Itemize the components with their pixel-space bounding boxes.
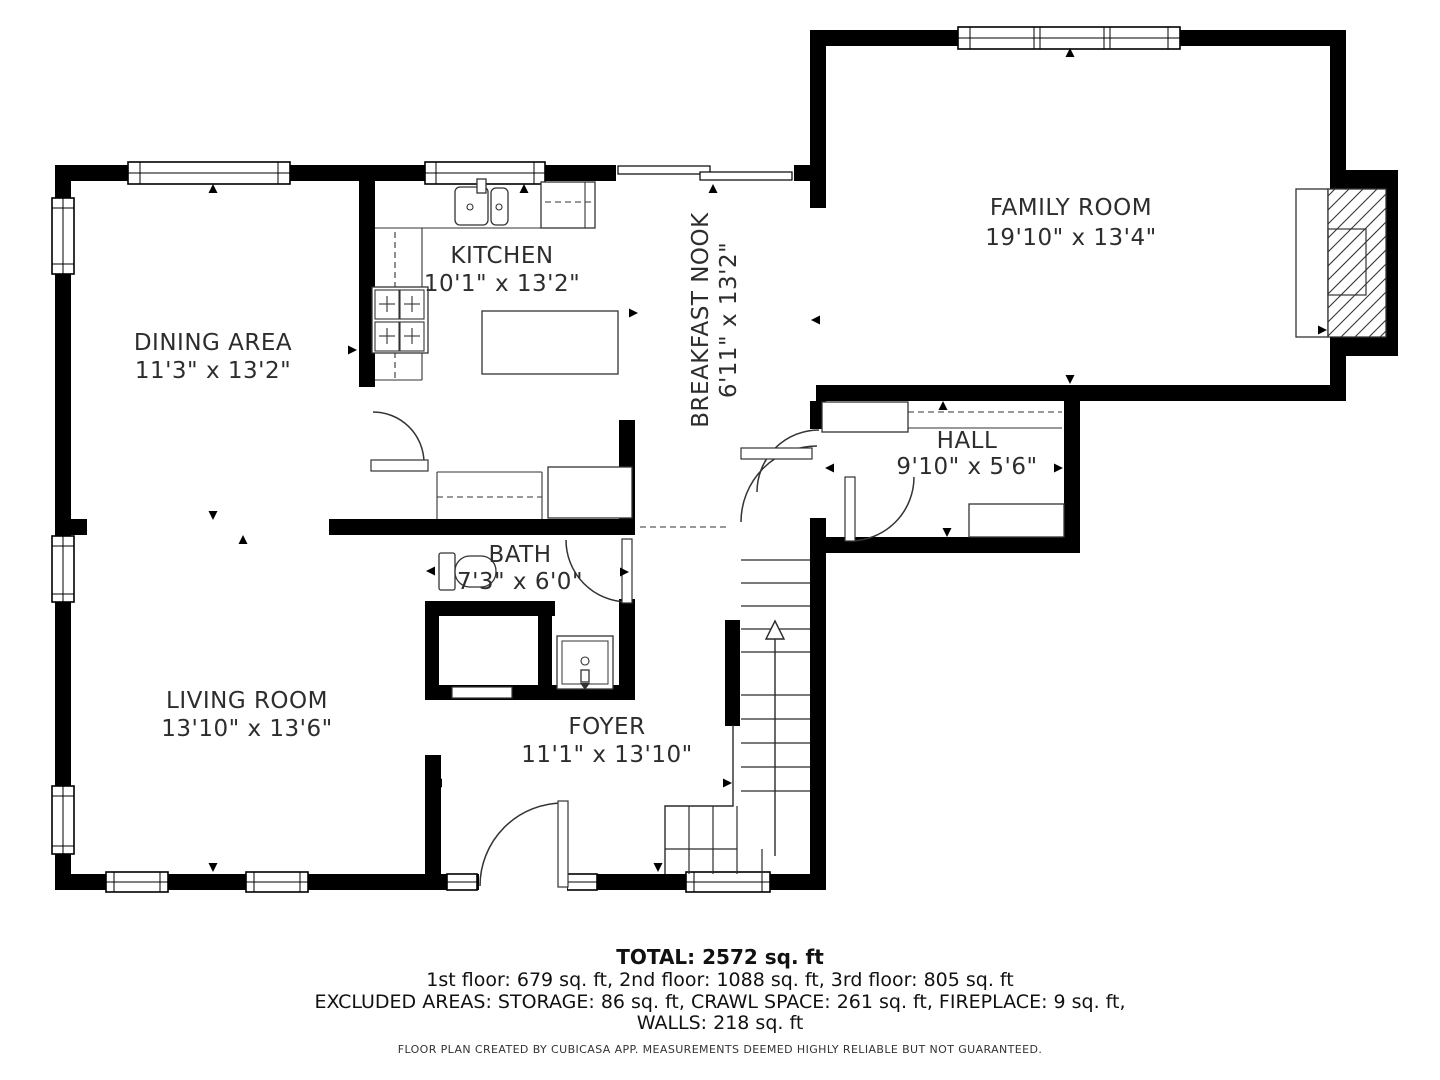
walls <box>55 30 1398 890</box>
hall-door <box>845 477 914 541</box>
hall-low-cabinet <box>969 504 1064 537</box>
sidelight-right <box>567 874 597 890</box>
window-left-living-1 <box>52 536 74 602</box>
room-dims-breakfast-nook: 6'11" x 13'2" <box>716 242 742 398</box>
storage-closet-door <box>452 687 512 698</box>
hall-cabinet <box>822 402 908 432</box>
window-living-bottom-2 <box>246 872 308 892</box>
room-dims-bath: 7'3" x 6'0" <box>457 569 583 595</box>
window-left-living-2 <box>52 786 74 854</box>
room-label-foyer: FOYER <box>568 714 645 740</box>
window-dining-top <box>128 162 290 184</box>
room-dims-hall: 9'10" x 5'6" <box>896 454 1037 480</box>
front-door <box>479 801 568 891</box>
room-dims-family-room: 19'10" x 13'4" <box>985 225 1156 251</box>
stairs-direction-arrow <box>766 621 784 856</box>
window-living-bottom-1 <box>106 872 168 892</box>
floor-plan-svg: FAMILY ROOM 19'10" x 13'4" KITCHEN 10'1"… <box>0 0 1440 1080</box>
kitchen-island <box>482 311 618 374</box>
hall-double-doors <box>741 430 819 522</box>
sliding-door-nook <box>616 164 794 183</box>
summary-excluded: EXCLUDED AREAS: STORAGE: 86 sq. ft, CRAW… <box>314 991 1125 1013</box>
summary-block: TOTAL: 2572 sq. ft 1st floor: 679 sq. ft… <box>314 945 1125 1056</box>
kitchen-closet-door <box>371 412 428 471</box>
kitchen-pantry-closet <box>437 467 632 519</box>
stove-icon <box>372 287 428 353</box>
room-labels: FAMILY ROOM 19'10" x 13'4" KITCHEN 10'1"… <box>134 195 1157 768</box>
room-dims-dining-area: 11'3" x 13'2" <box>135 358 291 384</box>
room-label-living-room: LIVING ROOM <box>166 688 328 714</box>
summary-total: TOTAL: 2572 sq. ft <box>616 945 824 969</box>
doors <box>371 412 914 891</box>
room-label-bath: BATH <box>488 542 551 568</box>
kitchen-cabinet <box>541 182 595 228</box>
summary-walls: WALLS: 218 sq. ft <box>637 1012 804 1034</box>
room-label-kitchen: KITCHEN <box>450 243 553 269</box>
summary-floors: 1st floor: 679 sq. ft, 2nd floor: 1088 s… <box>426 969 1013 991</box>
floor-plan-page: FAMILY ROOM 19'10" x 13'4" KITCHEN 10'1"… <box>0 0 1440 1080</box>
room-label-family-room: FAMILY ROOM <box>990 195 1152 221</box>
room-label-breakfast-nook: BREAKFAST NOOK <box>688 212 714 428</box>
room-label-dining-area: DINING AREA <box>134 330 292 356</box>
room-dims-kitchen: 10'1" x 13'2" <box>424 271 580 297</box>
fireplace <box>1296 189 1386 337</box>
room-dims-foyer: 11'1" x 13'10" <box>521 742 692 768</box>
kitchen-sink-icon <box>455 179 508 225</box>
window-family-top <box>958 27 1180 49</box>
room-dims-living-room: 13'10" x 13'6" <box>161 716 332 742</box>
shower-icon <box>557 636 613 690</box>
disclaimer: FLOOR PLAN CREATED BY CUBICASA APP. MEAS… <box>398 1043 1043 1056</box>
kitchen-fixtures <box>372 179 728 527</box>
sidelight-left <box>447 874 477 890</box>
stairs-winders <box>665 806 762 874</box>
room-label-hall: HALL <box>937 428 998 454</box>
window-left-dining <box>52 198 74 274</box>
window-stairs-bottom <box>686 872 770 892</box>
